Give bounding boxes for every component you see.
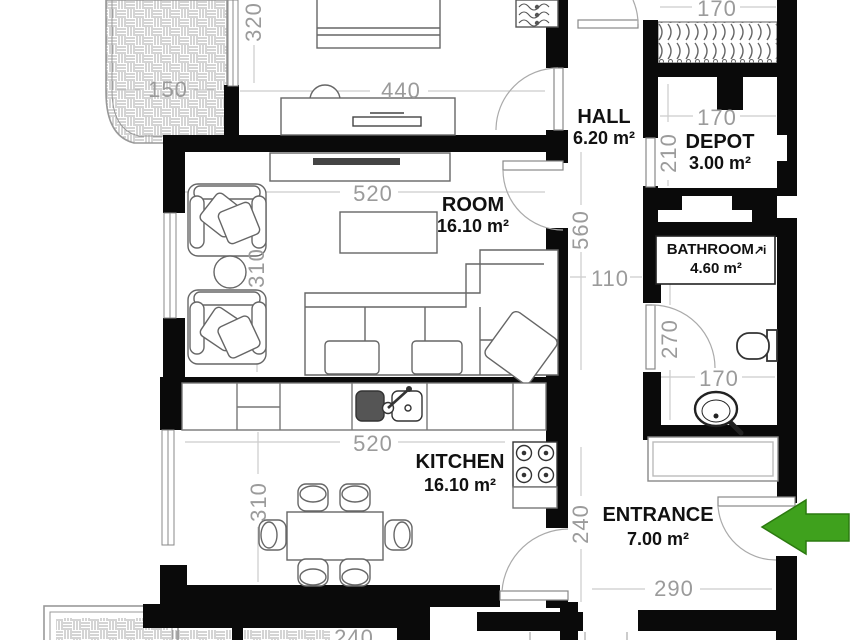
wall-segment [638,610,794,631]
dim-kitchen-height: 310 [246,474,272,530]
wall-segment [477,612,583,631]
hall-area: 6.20 m² [552,129,656,148]
entrance-arrow [762,500,849,554]
dim-closet-width: 170 [693,0,741,22]
depot-label: DEPOT [678,132,762,153]
wall-notch [777,135,787,161]
entrance-closet [648,437,778,481]
bathroom-label: BATHROOM↗i 4.60 m² [658,241,774,279]
dim-room-width: 520 [345,181,401,207]
wall-notch [777,196,797,218]
dim-bathroom-height: 270 [657,311,683,367]
wardrobe [658,22,777,63]
wall-notch [682,196,732,210]
wall-segment [163,135,185,213]
dim-bathroom-width: 170 [695,366,743,392]
dim-room-height: 310 [244,240,270,296]
corner-sofa [305,250,560,386]
wall-segment [397,604,430,640]
terrace-upper [106,0,227,143]
dim-entrance-width: 290 [646,576,702,602]
round-table [214,256,246,288]
dim-depot-width: 170 [693,105,741,131]
armchair [188,290,266,364]
wall-segment [777,0,797,503]
kitchen-label: KITCHEN [400,452,520,473]
kitchen-area: 16.10 m² [400,476,520,495]
bathroom-name: BATHROOM [667,241,754,258]
wall-segment [658,63,797,77]
depot-area: 3.00 m² [678,154,762,173]
bathroom-area: 4.60 m² [690,260,742,277]
wall-segment [643,222,797,237]
dim-terrace-width: 150 [140,77,196,103]
hall-top-door [578,0,638,28]
dim-entrance-height: 240 [568,496,594,552]
wall-segment [163,585,500,607]
floor-plan: HALL 6.20 m² DEPOT 3.00 m² ROOM 16.10 m²… [0,0,850,640]
wall-segment [160,377,184,430]
room-area: 16.10 m² [413,217,533,236]
dining-table [287,512,383,560]
dim-bedroom-width: 440 [373,78,429,104]
toilet [737,330,777,361]
bed [317,0,440,48]
shower-icon: ↗i [754,243,765,257]
dim-kitchen-width: 520 [345,431,401,457]
bedroom-door [496,68,563,130]
room-label: ROOM [418,195,528,216]
kitchen-door [500,529,568,600]
dim-hall-length: 560 [568,202,594,258]
entrance-label: ENTRANCE [598,505,718,526]
wall-segment [232,628,243,640]
sideboard-room [270,153,450,181]
dining-set [259,484,412,586]
dim-bedroom-height: 320 [241,0,267,50]
dim-corridor-width: 110 [586,266,634,292]
entrance-area: 7.00 m² [598,530,718,549]
radiator [516,0,558,27]
wall-segment [224,85,239,137]
wall-segment [163,135,568,152]
dim-depot-door: 210 [656,125,682,181]
wall-segment [143,604,430,628]
dim-lower-terrace: 240 [326,625,382,640]
hall-label: HALL [560,107,648,128]
